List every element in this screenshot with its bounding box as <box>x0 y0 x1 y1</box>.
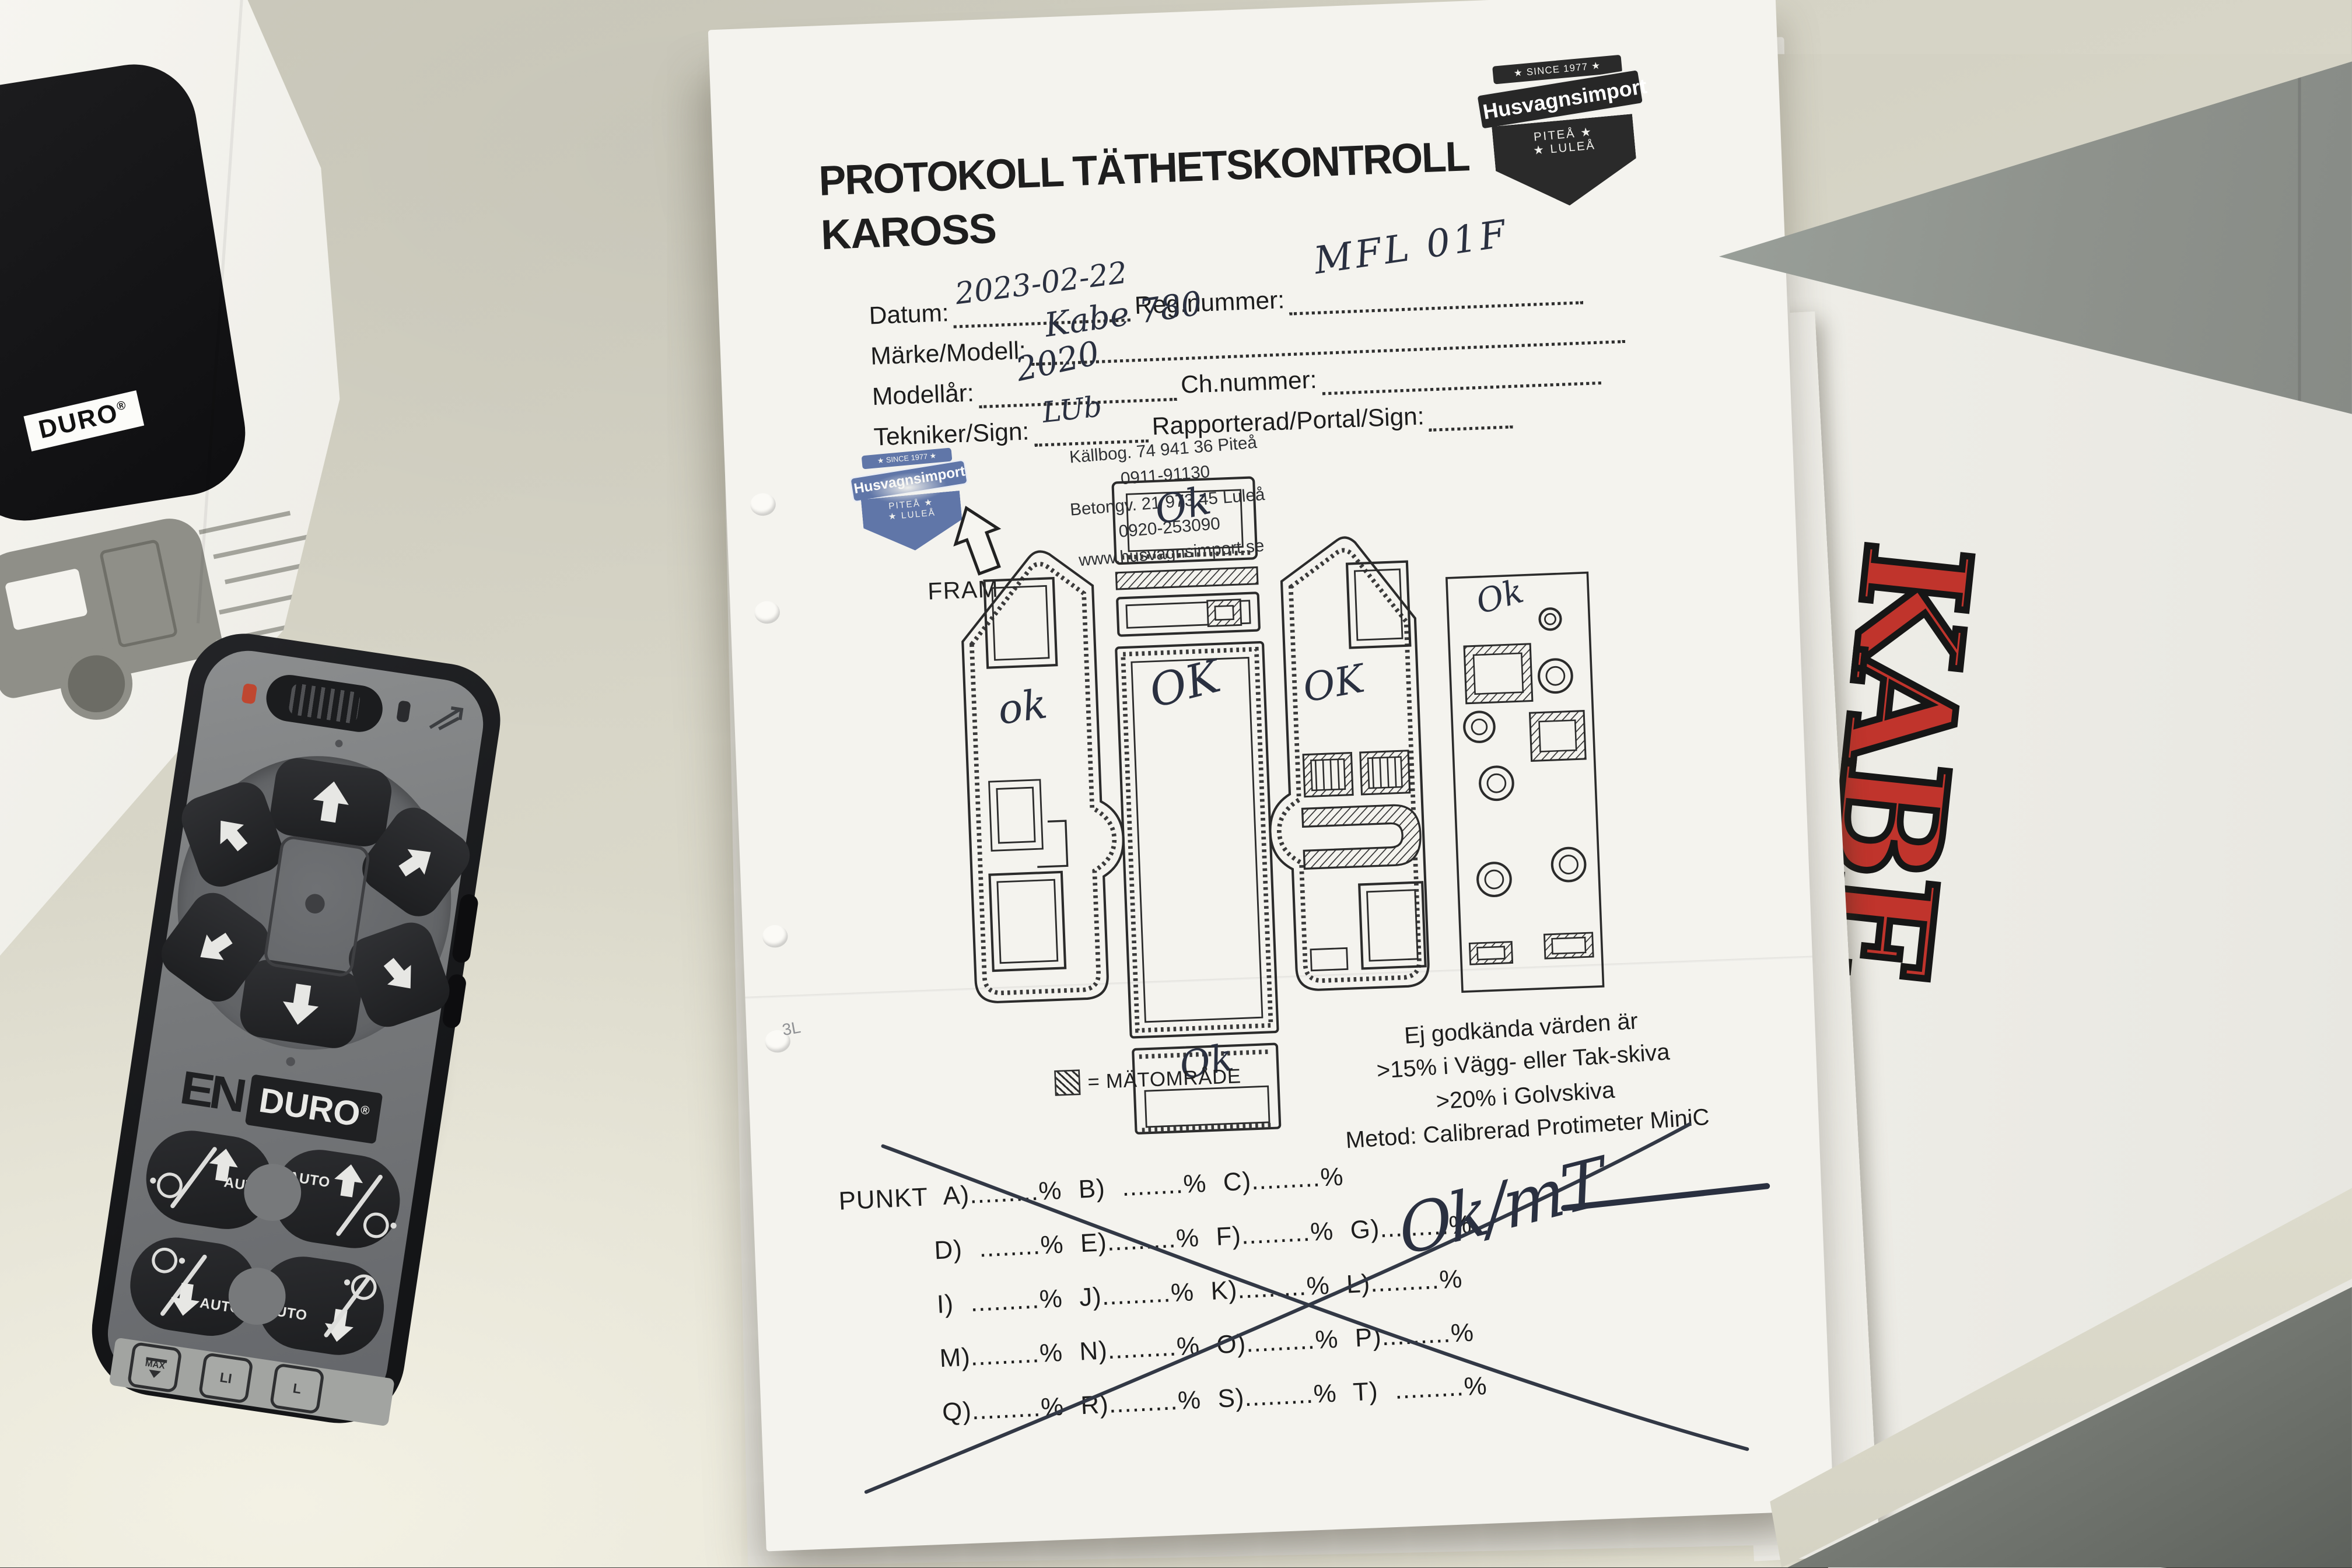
protocol-document: 3L ★ SINCE 1977 ★ Husvagnsimport PITEÅ ★… <box>708 0 1834 1551</box>
printed-remote-photo: DURO® <box>0 55 254 530</box>
datum-label: Datum: <box>869 300 950 331</box>
enduro-logo-en: EN <box>177 1062 246 1124</box>
caravan-topview-icon <box>262 834 371 978</box>
slider-ribs <box>288 682 361 724</box>
photo-of-desk: KABE DURO® <box>0 0 2352 1568</box>
right-wall-panel <box>1259 535 1429 991</box>
punch-hole <box>754 601 780 624</box>
tekniker-value: LUb <box>1040 391 1103 430</box>
left-wall-panel <box>960 549 1130 1003</box>
legend-text: = MÄTOMRÅDE <box>1087 1065 1242 1093</box>
speed-line <box>225 562 310 584</box>
ch-label: Ch.nummer: <box>1180 367 1317 401</box>
reg-value: MFL 01F <box>1311 212 1511 283</box>
enduro-logo-duro-box: DURO® <box>245 1073 383 1143</box>
speed-line <box>199 511 290 534</box>
antenna-icon <box>425 696 469 740</box>
modellar-label: Modellår: <box>871 380 974 413</box>
kabe-logo-text: KABE <box>1810 535 2002 777</box>
down-arrow-icon <box>323 1307 356 1344</box>
form-fields: Datum: 2023-02-22 Reg.nummer: MFL 01F Mä… <box>868 262 1639 453</box>
power-slider <box>263 672 386 735</box>
up-arrow-icon <box>310 779 352 825</box>
husvagnsimport-badge: ★ SINCE 1977 ★ Husvagnsimport PITEÅ ★ ★ … <box>1474 53 1651 213</box>
marke-label: Märke/Modell: <box>870 338 1027 372</box>
lead-battery-icon: L <box>269 1363 325 1415</box>
signature: Ok/mT <box>1397 1156 1793 1336</box>
down-arrow-icon <box>280 981 322 1027</box>
jockey-wheel-icon <box>362 1211 391 1240</box>
badge-cities: PITEÅ ★ ★ LULEÅ <box>1492 114 1640 212</box>
down-right-arrow-icon <box>376 951 422 999</box>
down-arrow-icon <box>169 1280 202 1318</box>
up-left-arrow-icon <box>209 811 255 858</box>
hatch-icon <box>1054 1069 1080 1095</box>
li-battery-icon: LI <box>198 1352 254 1404</box>
face-dot <box>285 1056 296 1067</box>
ok-mark-left-wall: ok <box>995 681 1050 734</box>
speed-line <box>219 586 334 614</box>
jockey-wheel-icon <box>150 1246 179 1275</box>
down-left-arrow-icon <box>192 925 239 970</box>
floor-panel <box>1447 573 1604 992</box>
signal-led <box>241 683 257 704</box>
folder-fold-line <box>2298 54 2301 429</box>
max-load-icon: MAX <box>127 1342 183 1394</box>
duro-label: DURO® <box>23 390 144 452</box>
up-right-arrow-icon <box>393 839 439 885</box>
speed-line <box>213 532 319 558</box>
caravan-topview-dot <box>304 892 326 915</box>
rapporterad-leader <box>1428 401 1513 432</box>
document-title-line1: PROTOKOLL TÄTHETSKONTROLL <box>818 133 1470 206</box>
punch-hole <box>762 925 788 948</box>
margin-note: 3L <box>781 1019 802 1040</box>
document-title-line2: KAROSS <box>820 205 997 260</box>
punch-hole <box>750 493 776 516</box>
slider-slot <box>396 700 411 723</box>
desk-surface: KABE DURO® <box>0 0 2352 1567</box>
mic-hole <box>335 739 344 748</box>
up-arrow-icon <box>332 1162 365 1199</box>
